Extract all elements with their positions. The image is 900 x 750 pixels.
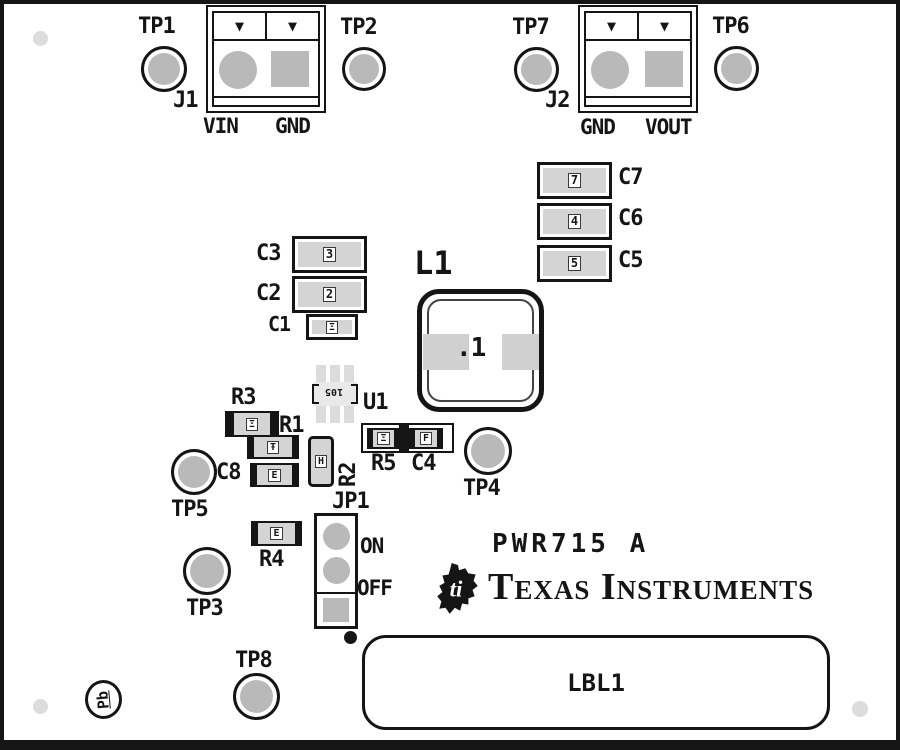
lbl1-text: LBL1: [567, 669, 625, 697]
jp1-jumper: [314, 513, 358, 629]
l1-right-pad: [502, 334, 539, 370]
u1-ic: 105: [311, 365, 360, 423]
c8-capacitor: E: [250, 463, 299, 487]
c3-capacitor: 3: [292, 236, 367, 273]
tp7-label: TP7: [512, 15, 549, 40]
c2-capacitor: 2: [292, 276, 367, 313]
j1-connector: ▼ ▼: [206, 5, 326, 113]
c5-label: C5: [618, 248, 643, 273]
r4-resistor: E: [251, 521, 302, 546]
pb-free-text: Pb: [94, 690, 114, 710]
u1-marking: 105: [325, 386, 343, 397]
brand-wordmark: Texas Instruments: [488, 565, 814, 609]
tp4-test-point: [464, 427, 512, 475]
tp8-test-point: [233, 673, 280, 720]
r3-marking: Ξ: [246, 418, 258, 431]
j2-foot-line: [586, 96, 690, 98]
bottom-edge-bar: [0, 740, 900, 750]
u1-pad: [316, 365, 326, 382]
pin1-arrow-icon: ▼: [214, 13, 265, 39]
u1-bracket-right: [351, 384, 358, 404]
pb-free-icon: Pb: [85, 680, 122, 719]
j1-square-pad: [271, 51, 309, 87]
u1-pad: [330, 365, 340, 382]
c3-label: C3: [256, 241, 281, 266]
fiducial-dot: [852, 701, 868, 717]
c6-label: C6: [618, 206, 643, 231]
c3-marking: 3: [323, 247, 336, 262]
c4-label: C4: [411, 451, 436, 476]
c2-marking: 2: [323, 287, 336, 302]
j1-foot-line: [214, 96, 318, 98]
lbl1-box: LBL1: [362, 635, 830, 730]
c6-capacitor: 4: [537, 203, 612, 240]
r3-resistor: Ξ: [225, 411, 279, 437]
r4-label: R4: [259, 547, 284, 572]
c7-capacitor: 7: [537, 162, 612, 199]
c1-marking: Ξ: [326, 321, 338, 334]
c4-marking: F: [420, 432, 432, 445]
r1-marking: Ŧ: [267, 441, 279, 454]
r5-label: R5: [371, 451, 396, 476]
r3-label: R3: [231, 385, 256, 410]
c7-label: C7: [618, 165, 643, 190]
tp2-test-point: [342, 47, 386, 91]
l1-marking: .1: [456, 333, 485, 363]
jp1-pin-on: [323, 523, 350, 550]
tp2-label: TP2: [340, 15, 377, 40]
r2-resistor: H: [308, 436, 334, 487]
r5-marking: Ξ: [377, 432, 389, 445]
tp8-label: TP8: [235, 648, 272, 673]
j2-connector-body: ▼ ▼: [584, 11, 692, 107]
ti-logo-icon: ti: [437, 562, 479, 616]
c1-label: C1: [268, 312, 290, 336]
r1-resistor: Ŧ: [247, 435, 299, 459]
r2-label: R2: [336, 441, 361, 487]
jp1-origin-dot: [344, 631, 357, 644]
c1-capacitor: Ξ: [306, 314, 358, 340]
c4-capacitor: F: [409, 428, 443, 449]
u1-pad: [344, 406, 354, 423]
j1-pin-gnd-label: GND: [275, 114, 310, 138]
c7-marking: 7: [568, 173, 581, 188]
j2-pin-vout-label: VOUT: [645, 115, 692, 139]
r4-marking: E: [270, 527, 282, 540]
tp5-label: TP5: [171, 497, 208, 522]
jp1-pin-mid: [323, 557, 350, 584]
u1-pad: [316, 406, 326, 423]
c5-capacitor: 5: [537, 245, 612, 282]
pin2-arrow-icon: ▼: [265, 13, 318, 39]
j2-pin-header: ▼ ▼: [586, 13, 690, 41]
l1-label: L1: [414, 244, 453, 282]
pcb-board: TP1 ▼ ▼ J1 VIN GND TP2 TP7 ▼ ▼ J2 GN: [0, 0, 900, 750]
tp3-label: TP3: [186, 596, 223, 621]
tp1-label: TP1: [138, 14, 175, 39]
tp6-test-point: [714, 46, 759, 91]
pin2-arrow-icon: ▼: [637, 13, 690, 39]
j1-pin-header: ▼ ▼: [214, 13, 318, 41]
tp3-test-point: [183, 547, 231, 595]
jp1-label: JP1: [332, 489, 369, 514]
j2-round-pad: [591, 51, 629, 89]
r1-label: R1: [279, 413, 304, 438]
u1-pad: [330, 406, 340, 423]
c5-marking: 5: [568, 256, 581, 271]
pin1-arrow-icon: ▼: [586, 13, 637, 39]
tp4-label: TP4: [463, 476, 500, 501]
j2-square-pad: [645, 51, 683, 87]
u1-pad: [344, 365, 354, 382]
tp5-test-point: [171, 449, 217, 495]
j1-round-pad: [219, 51, 257, 89]
r2-marking: H: [315, 455, 327, 468]
j2-label: J2: [545, 88, 570, 113]
tp6-label: TP6: [712, 14, 749, 39]
jp1-on-label: ON: [360, 534, 383, 558]
c8-marking: E: [268, 469, 280, 482]
jp1-off-label: OFF: [357, 576, 392, 600]
fiducial-dot: [33, 699, 48, 714]
u1-bracket-left: [312, 384, 319, 404]
svg-text:ti: ti: [450, 576, 463, 601]
c6-marking: 4: [568, 214, 581, 229]
j1-connector-body: ▼ ▼: [212, 11, 320, 107]
jp1-pin-off: [323, 598, 349, 622]
fiducial-dot: [33, 31, 48, 46]
board-id: PWR715 A: [492, 529, 649, 559]
tp1-test-point: [141, 46, 187, 92]
r5-c4-divider: [399, 424, 409, 452]
j1-pin-vin-label: VIN: [203, 114, 238, 138]
j2-pin-gnd-label: GND: [580, 115, 615, 139]
u1-label: U1: [363, 390, 388, 415]
r5-resistor: Ξ: [367, 428, 400, 449]
j1-label: J1: [173, 88, 198, 113]
jp1-divider-line: [317, 592, 355, 594]
c2-label: C2: [256, 281, 281, 306]
j2-connector: ▼ ▼: [578, 5, 698, 113]
c8-label: C8: [216, 460, 241, 485]
tp7-test-point: [514, 47, 559, 92]
